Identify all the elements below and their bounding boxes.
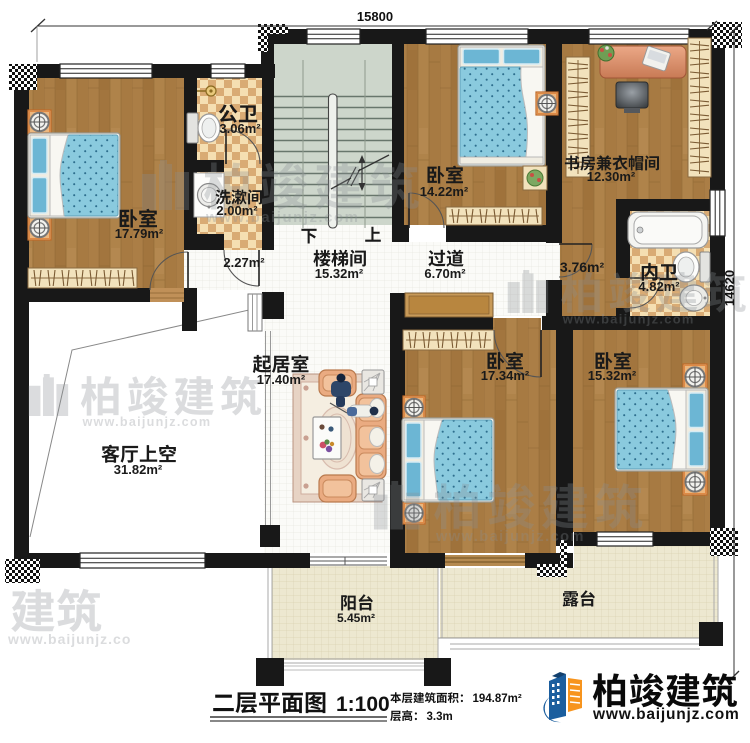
svg-text:15.32m²: 15.32m² [588, 368, 637, 383]
svg-text:17.40m²: 17.40m² [257, 372, 306, 387]
svg-text:www.baijunjz.com: www.baijunjz.com [592, 706, 740, 723]
svg-text:3.3m: 3.3m [427, 711, 453, 723]
svg-text:17.79m²: 17.79m² [115, 226, 164, 241]
svg-text:www.baijunjz.co: www.baijunjz.co [7, 631, 131, 647]
svg-text:www.baijunjz.com: www.baijunjz.com [81, 415, 211, 429]
svg-text:15800: 15800 [357, 9, 393, 24]
svg-text:2.00m²: 2.00m² [216, 203, 258, 218]
svg-text:www.baijunjz.com: www.baijunjz.com [562, 311, 695, 326]
svg-text:6.70m²: 6.70m² [424, 266, 466, 281]
svg-text:3.76m²: 3.76m² [560, 259, 605, 275]
svg-text:17.34m²: 17.34m² [481, 368, 530, 383]
svg-text:14620: 14620 [722, 270, 737, 306]
svg-text:5.45m²: 5.45m² [337, 611, 375, 625]
svg-text:www.baijunjz.com: www.baijunjz.com [435, 529, 585, 545]
svg-text:1:100: 1:100 [336, 693, 390, 716]
svg-text:14.22m²: 14.22m² [420, 184, 469, 199]
svg-text:12.30m²: 12.30m² [587, 169, 636, 184]
svg-text:31.82m²: 31.82m² [114, 462, 163, 477]
svg-text:4.82m²: 4.82m² [638, 279, 680, 294]
svg-text:15.32m²: 15.32m² [315, 266, 364, 281]
svg-text:3.06m²: 3.06m² [219, 121, 261, 136]
svg-text:2.27m²: 2.27m² [223, 255, 265, 270]
svg-text:194.87m²: 194.87m² [473, 693, 522, 705]
